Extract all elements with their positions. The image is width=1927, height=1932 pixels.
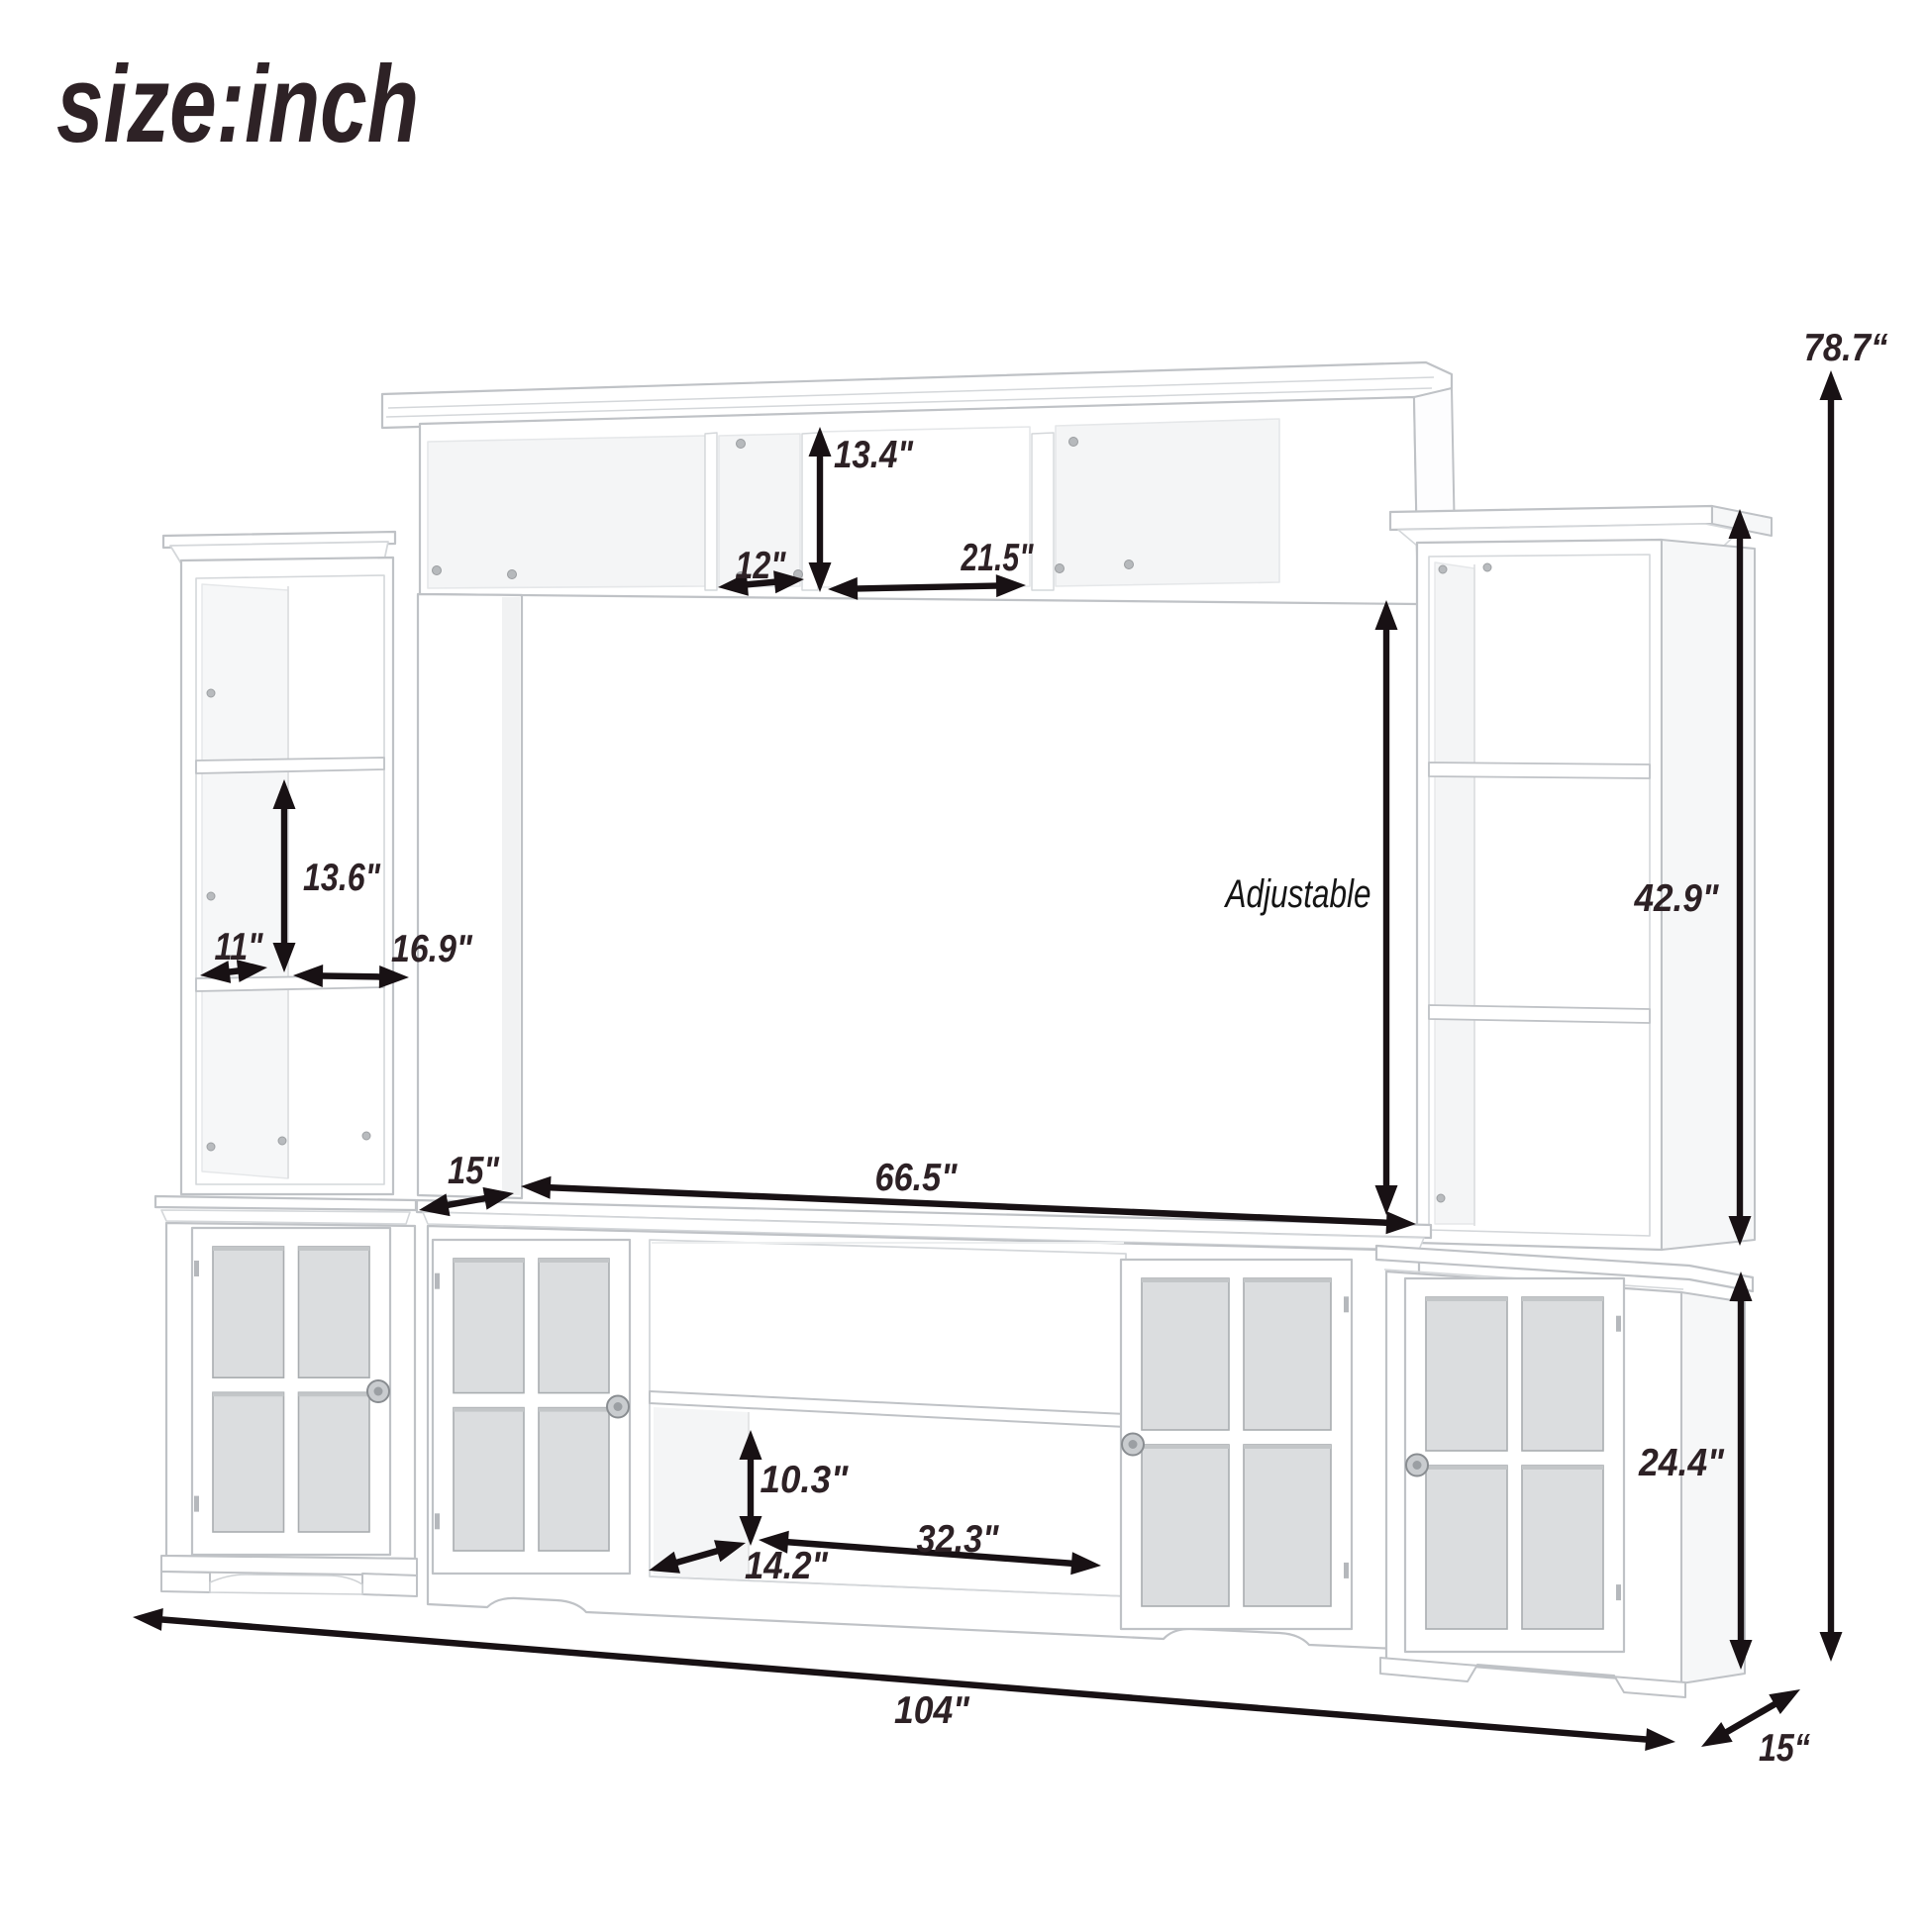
svg-text:16.9": 16.9" <box>391 928 472 970</box>
svg-text:11": 11" <box>215 926 263 968</box>
svg-text:14.2": 14.2" <box>745 1545 828 1587</box>
svg-text:32.3": 32.3" <box>917 1518 999 1561</box>
svg-text:15“: 15“ <box>1759 1727 1810 1770</box>
svg-text:10.3": 10.3" <box>761 1459 849 1501</box>
svg-text:size:inch: size:inch <box>56 44 419 165</box>
svg-text:24.4": 24.4" <box>1638 1442 1724 1484</box>
svg-text:15": 15" <box>448 1150 499 1192</box>
svg-text:12": 12" <box>736 545 786 587</box>
svg-text:21.5": 21.5" <box>961 537 1034 579</box>
svg-text:66.5": 66.5" <box>875 1157 958 1199</box>
svg-text:78.7“: 78.7“ <box>1804 327 1888 369</box>
svg-text:13.6": 13.6" <box>303 857 380 899</box>
svg-text:42.9": 42.9" <box>1634 877 1719 920</box>
svg-text:104": 104" <box>894 1689 969 1732</box>
svg-text:13.4": 13.4" <box>834 434 913 476</box>
svg-text:Adjustable: Adjustable <box>1224 872 1371 916</box>
